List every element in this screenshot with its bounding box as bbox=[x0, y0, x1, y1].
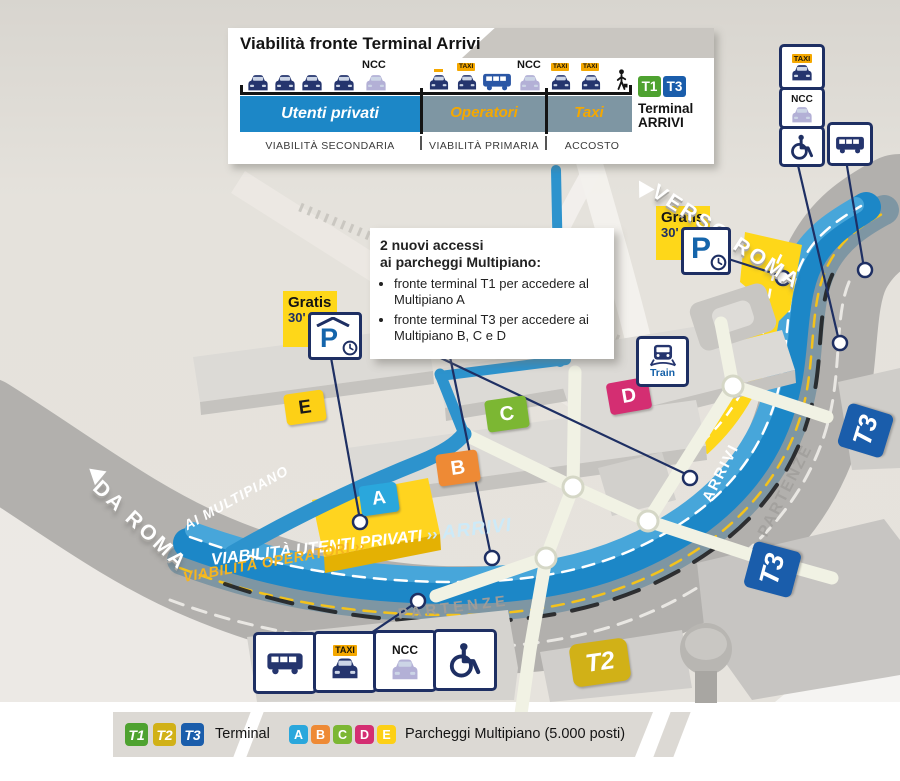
train-station-sign: Train bbox=[636, 336, 689, 387]
caption-secondaria: VIABILITÀ SECONDARIA bbox=[240, 140, 420, 152]
bus-sign-box bbox=[253, 632, 317, 694]
bus-sign-box bbox=[827, 122, 873, 166]
caption-divider bbox=[420, 136, 422, 150]
info-title-line2: ai parcheggi Multipiano: bbox=[380, 254, 604, 271]
parking-p-letter: P bbox=[691, 232, 711, 266]
curb-tick bbox=[240, 85, 243, 95]
viability-legend-panel: Viabilità fronte Terminal Arrivi NCC TAX… bbox=[228, 28, 714, 164]
car-icon bbox=[246, 74, 270, 91]
ncc-car-icon bbox=[518, 74, 542, 91]
train-label: Train bbox=[650, 367, 675, 379]
legend-t1-badge: T1 bbox=[125, 723, 148, 746]
info-bullet: fronte terminal T3 per accedere ai Multi… bbox=[394, 312, 604, 345]
lane-private: Utenti privati bbox=[240, 96, 420, 132]
parking-e-badge: E bbox=[283, 389, 327, 425]
clock-icon bbox=[342, 340, 358, 356]
taxi-sign: TAXI bbox=[457, 63, 475, 71]
legend-parking-e-badge: E bbox=[377, 725, 396, 744]
arrow-chevrons: ›› bbox=[425, 525, 438, 544]
arrivi-word: ARRIVI bbox=[638, 115, 684, 130]
ncc-sign-box: NCC bbox=[779, 87, 825, 129]
caption-divider bbox=[545, 136, 547, 150]
ncc-car-icon bbox=[388, 658, 422, 680]
taxi-sign: TAXI bbox=[551, 63, 569, 71]
terminal-word: Terminal bbox=[638, 101, 693, 116]
lane-divider bbox=[545, 88, 548, 134]
caption-accosto: ACCOSTO bbox=[551, 140, 633, 152]
ncc-label: NCC bbox=[362, 59, 386, 71]
info-bullets: fronte terminal T1 per accedere al Multi… bbox=[380, 276, 604, 345]
legend-t2-badge: T2 bbox=[153, 723, 176, 746]
ncc-label: NCC bbox=[517, 59, 541, 71]
bus-icon bbox=[482, 72, 512, 91]
curb-line-private bbox=[240, 92, 420, 95]
taxi-car-icon bbox=[789, 64, 815, 81]
taxi-car-icon bbox=[456, 74, 478, 90]
legend-parking-d-badge: D bbox=[355, 725, 374, 744]
bus-icon bbox=[266, 651, 304, 675]
curb-line-operators bbox=[422, 92, 632, 95]
taxi-sign: TAXI bbox=[333, 645, 357, 656]
bus-icon bbox=[835, 135, 865, 154]
caption-primaria: VIABILITÀ PRIMARIA bbox=[426, 140, 542, 152]
ncc-car-icon bbox=[789, 106, 815, 123]
parking-p-letter: P bbox=[320, 323, 338, 354]
police-car-icon bbox=[428, 74, 450, 90]
taxi-sign: TAXI bbox=[792, 54, 813, 63]
legend-parking-b-badge: B bbox=[311, 725, 330, 744]
ncc-label: NCC bbox=[791, 94, 813, 105]
covered-parking-clock-icon: P bbox=[308, 312, 362, 360]
parking-c-badge: C bbox=[484, 395, 530, 433]
clock-icon bbox=[710, 254, 727, 271]
taxi-sign: TAXI bbox=[581, 63, 599, 71]
parking-clock-icon: P bbox=[681, 227, 731, 275]
accessibility-sign-box bbox=[779, 126, 825, 167]
car-icon bbox=[273, 74, 297, 91]
curb-tick bbox=[629, 85, 632, 95]
taxi-sign-box: TAXI bbox=[313, 631, 377, 693]
train-icon bbox=[648, 344, 678, 367]
car-icon bbox=[332, 74, 356, 91]
legend-t3-badge: T3 bbox=[181, 723, 204, 746]
parking-a-badge: A bbox=[358, 482, 400, 517]
new-access-info-box: 2 nuovi accessi ai parcheggi Multipiano:… bbox=[370, 228, 614, 359]
lane-taxi-label: Taxi bbox=[546, 104, 632, 121]
legend-parking-a-badge: A bbox=[289, 725, 308, 744]
lane-operatori-label: Operatori bbox=[422, 104, 546, 121]
t3-badge: T3 bbox=[663, 76, 686, 97]
taxi-sign-box: TAXI bbox=[779, 44, 825, 90]
t1-badge: T1 bbox=[638, 76, 661, 97]
car-icon bbox=[300, 74, 324, 91]
map-legend-bar: T1 T2 T3 Terminal A B C D E Parcheggi Mu… bbox=[113, 712, 653, 757]
legend-parking-caption: Parcheggi Multipiano (5.000 posti) bbox=[405, 712, 625, 757]
ncc-car-icon bbox=[364, 74, 388, 91]
accessibility-sign-box bbox=[433, 629, 497, 691]
taxi-car-icon bbox=[580, 74, 602, 90]
parking-b-badge: B bbox=[435, 449, 481, 487]
taxi-car-icon bbox=[550, 74, 572, 90]
lane-private-label: Utenti privati bbox=[281, 105, 379, 123]
pedestrian-icon bbox=[614, 68, 629, 92]
wheelchair-icon bbox=[447, 642, 483, 678]
airport-viability-map: Viabilità fronte Terminal Arrivi NCC TAX… bbox=[0, 0, 900, 781]
ncc-label: NCC bbox=[392, 643, 418, 657]
legend-terminal-caption: Terminal bbox=[215, 712, 270, 757]
taxi-car-icon bbox=[328, 657, 362, 679]
info-bullet: fronte terminal T1 per accedere al Multi… bbox=[394, 276, 604, 309]
legend-parking-c-badge: C bbox=[333, 725, 352, 744]
wheelchair-icon bbox=[789, 134, 815, 160]
ncc-sign-box: NCC bbox=[373, 630, 437, 692]
terminal-t2-badge: T2 bbox=[568, 637, 631, 688]
panel-corner-decoration bbox=[462, 28, 714, 58]
police-lightbar-icon bbox=[434, 69, 443, 72]
gratis-label: Gratis bbox=[288, 294, 337, 311]
lane-divider bbox=[420, 88, 423, 134]
info-title-line1: 2 nuovi accessi bbox=[380, 237, 604, 254]
panel-title: Viabilità fronte Terminal Arrivi bbox=[240, 34, 481, 54]
